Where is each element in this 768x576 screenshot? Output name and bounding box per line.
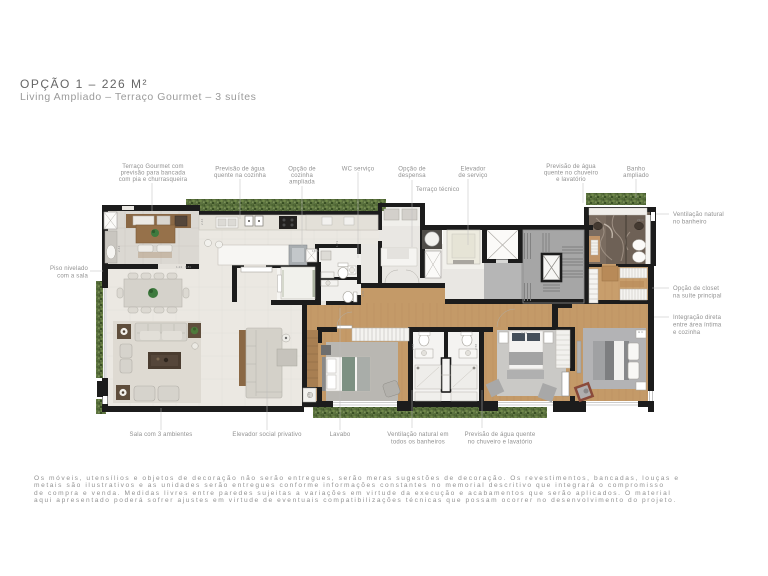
svg-text:H C: H C	[638, 330, 644, 334]
svg-text:1.73: 1.73	[335, 241, 339, 247]
svg-text:Sala com 3 ambientes: Sala com 3 ambientes	[130, 432, 193, 438]
svg-text:Ventilação natural em: Ventilação natural em	[387, 432, 448, 438]
svg-text:de serviço: de serviço	[458, 173, 488, 179]
svg-text:Terraço Gourmet com: Terraço Gourmet com	[122, 164, 183, 170]
svg-text:entre área íntima: entre área íntima	[673, 323, 722, 329]
svg-text:WC serviço: WC serviço	[342, 167, 375, 173]
svg-text:4.78: 4.78	[307, 392, 311, 398]
svg-text:2.44: 2.44	[117, 246, 121, 252]
svg-text:Elevador: Elevador	[460, 167, 485, 173]
svg-text:Lavabo: Lavabo	[330, 432, 351, 438]
svg-text:Previsão de água: Previsão de água	[546, 164, 596, 170]
svg-text:2.44: 2.44	[200, 219, 204, 225]
svg-text:no banheiro: no banheiro	[673, 220, 707, 226]
svg-text:Banho: Banho	[627, 167, 646, 173]
svg-text:e lavatório: e lavatório	[556, 177, 586, 183]
svg-text:cozinha: cozinha	[291, 173, 313, 179]
svg-text:Opção de closet: Opção de closet	[673, 286, 719, 292]
svg-text:na suíte principal: na suíte principal	[673, 294, 722, 300]
svg-text:Opção de: Opção de	[398, 167, 426, 173]
svg-text:quente na cozinha: quente na cozinha	[214, 173, 267, 179]
svg-text:Previsão de água: Previsão de água	[215, 167, 265, 173]
svg-text:2.58: 2.58	[474, 344, 478, 350]
svg-text:2.58: 2.58	[411, 344, 415, 350]
svg-text:Previsão de água quente: Previsão de água quente	[465, 432, 536, 438]
svg-text:todos os banheiros: todos os banheiros	[391, 440, 445, 446]
svg-text:Piso nivelado: Piso nivelado	[50, 266, 89, 272]
svg-text:16 B: 16 B	[312, 249, 319, 253]
svg-text:29 C: 29 C	[637, 218, 644, 222]
svg-text:com a sala: com a sala	[57, 274, 88, 280]
svg-text:despensa: despensa	[398, 173, 426, 179]
svg-text:previsão para bancada: previsão para bancada	[121, 171, 186, 177]
svg-text:no chuveiro e lavatório: no chuveiro e lavatório	[468, 440, 533, 446]
svg-text:quente no chuveiro: quente no chuveiro	[544, 171, 599, 177]
svg-text:Ventilação natural: Ventilação natural	[673, 212, 724, 218]
svg-text:Integração direta: Integração direta	[673, 315, 722, 321]
svg-text:ampliado: ampliado	[623, 173, 649, 179]
svg-text:e cozinha: e cozinha	[673, 330, 701, 336]
svg-text:4.70: 4.70	[361, 291, 365, 297]
svg-text:1.21 6.81: 1.21 6.81	[176, 265, 191, 269]
svg-text:com pia e churrasqueira: com pia e churrasqueira	[119, 177, 188, 183]
svg-text:Opção de: Opção de	[288, 167, 316, 173]
svg-text:Elevador social privativo: Elevador social privativo	[232, 432, 302, 438]
svg-text:ampliada: ampliada	[289, 180, 315, 186]
svg-text:3.43: 3.43	[521, 331, 527, 335]
svg-text:Terraço técnico: Terraço técnico	[416, 187, 460, 193]
